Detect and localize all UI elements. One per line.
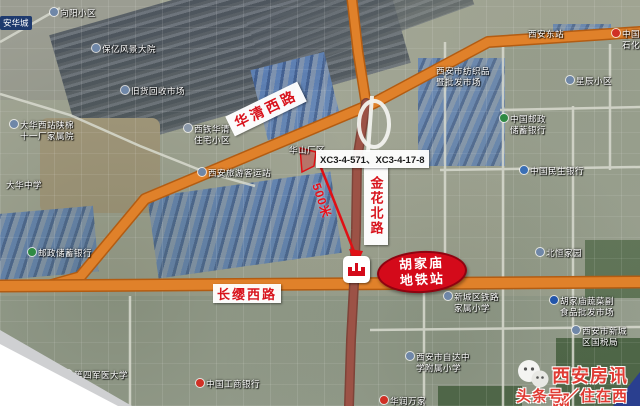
poi-icon — [520, 166, 528, 174]
poi-icon — [550, 296, 558, 304]
poi-secondhand-market: 旧货回收市场 — [121, 86, 185, 97]
poi-text: 华润万家 — [390, 396, 426, 406]
poi-icon — [10, 120, 18, 128]
metro-logo — [346, 259, 367, 280]
map-screenshot: 安华城 向阳小区保亿风景大院旧货回收市场西铁华清 住宅小区大华西站陕棉 十一厂家… — [0, 0, 640, 406]
poi-text: 胡家庙蔬菜副 食品批发市场 — [560, 296, 614, 317]
changying-road-plate: 长缨西路 — [213, 284, 281, 303]
poi-icon — [566, 76, 574, 84]
poi-icon — [444, 292, 452, 300]
poi-icon — [196, 379, 204, 387]
poi-minsheng-bank: 中国民生银行 — [520, 166, 584, 177]
poi-sinopec: 中国石化 — [612, 29, 640, 50]
parcel-code-label: XC3-4-571、XC3-4-17-8 — [316, 150, 429, 168]
poi-icon — [121, 86, 129, 94]
poi-icon — [50, 8, 58, 16]
poi-xiangyang-community: 向阳小区 — [50, 8, 96, 19]
poi-text: 大华西站陕棉 十一厂家属院 — [20, 120, 74, 141]
poi-icon — [380, 396, 388, 404]
metro-station-icon — [343, 256, 370, 283]
poi-xingchen-community: 星辰小区 — [566, 76, 612, 87]
poi-hujiamiao-food-market: 胡家庙蔬菜副 食品批发市场 — [550, 296, 614, 317]
poi-text: 星辰小区 — [576, 76, 612, 87]
poi-text: 西安东站 — [528, 29, 564, 40]
poi-text: 西铁华清 住宅小区 — [194, 124, 230, 145]
poi-text: 向阳小区 — [60, 8, 96, 19]
poi-china-post-savings-bank: 中国邮政 储蓄银行 — [500, 114, 546, 135]
poi-text: 大华中学 — [6, 180, 42, 191]
poi-text: 新城区铁路 家属小学 — [454, 292, 499, 313]
poi-icon — [184, 124, 192, 132]
poi-railway-family-school: 新城区铁路 家属小学 — [444, 292, 499, 313]
poi-xincheng-tax-bureau: 西安市新城 区国税局 — [572, 326, 627, 347]
watermark-byline: 头条号／住在西安 — [516, 385, 640, 406]
poi-dahua-xizhan-shanmian: 大华西站陕棉 十一厂家属院 — [10, 120, 74, 141]
station-name-line2: 地铁站 — [400, 271, 446, 289]
poi-postal-savings-bank-west: 邮政储蓄银行 — [28, 248, 92, 259]
poi-beiheng-community: 北恒家园 — [536, 248, 582, 259]
poi-text: 中国民生银行 — [530, 166, 584, 177]
poi-xian-east-station: 西安东站 — [528, 29, 564, 40]
poi-textile-wholesale-market: 西安市纺织品 暨批发市场 — [436, 66, 490, 87]
poi-text: 中国邮政 储蓄银行 — [510, 114, 546, 135]
poi-text: 西安旅游客运站 — [208, 168, 271, 179]
poi-text: 北恒家园 — [546, 248, 582, 259]
poi-xitie-huaqing-community: 西铁华清 住宅小区 — [184, 124, 230, 145]
poi-icon — [612, 29, 620, 37]
poi-text: 西安市新城 区国税局 — [582, 326, 627, 347]
poi-icbc-bank: 中国工商银行 — [196, 379, 260, 390]
jinhua-road-plate: 金花北路 — [364, 167, 388, 245]
poi-text: 保亿风景大院 — [102, 44, 156, 55]
poi-icon — [500, 114, 508, 122]
poi-icon — [536, 248, 544, 256]
poi-text: 西安市自达中 学附属小学 — [416, 352, 470, 373]
poi-icon — [28, 248, 36, 256]
poi-icon — [198, 168, 206, 176]
poi-tourism-bus-station: 西安旅游客运站 — [198, 168, 271, 179]
poi-huarun-wanjia: 华润万家 — [380, 396, 426, 406]
poi-dahua-middle-school: 大华中学 — [6, 180, 42, 191]
poi-zida-attached-school: 西安市自达中 学附属小学 — [406, 352, 470, 373]
poi-text: 旧货回收市场 — [131, 86, 185, 97]
poi-text: 西安市纺织品 暨批发市场 — [436, 66, 490, 87]
poi-icon — [92, 44, 100, 52]
poi-text: 中国石化 — [622, 29, 640, 50]
poi-text: 邮政储蓄银行 — [38, 248, 92, 259]
poi-baoyi-fengjing-compound: 保亿风景大院 — [92, 44, 156, 55]
poi-text: 中国工商银行 — [206, 379, 260, 390]
poi-icon — [406, 352, 414, 360]
poi-icon — [572, 326, 580, 334]
